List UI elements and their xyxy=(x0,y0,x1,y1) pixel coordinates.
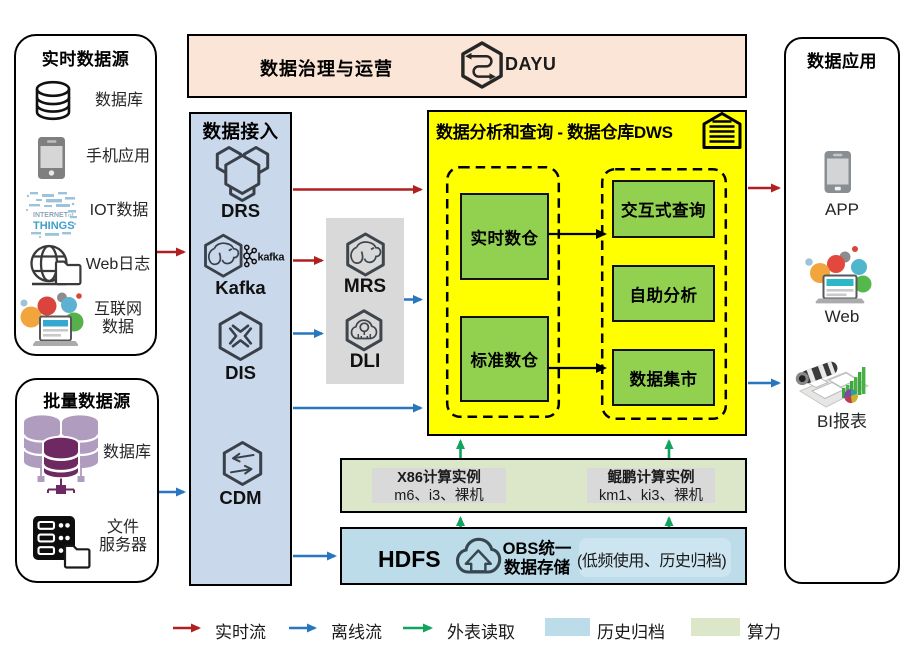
svg-text:kafka: kafka xyxy=(258,252,286,264)
svg-text:INTERNETof: INTERNETof xyxy=(33,212,73,219)
svg-text:THINGS: THINGS xyxy=(33,220,75,232)
